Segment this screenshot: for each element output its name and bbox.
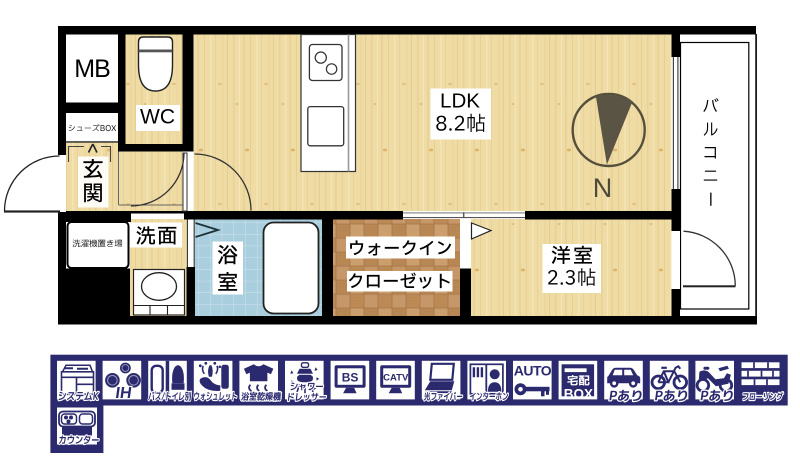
svg-text:LDK: LDK xyxy=(440,90,480,113)
svg-text:MB: MB xyxy=(74,55,110,83)
svg-text:IH: IH xyxy=(114,384,133,402)
svg-text:BS: BS xyxy=(342,370,359,384)
svg-text:BOX: BOX xyxy=(564,387,593,402)
svg-text:AUTO: AUTO xyxy=(514,362,552,378)
svg-text:WC: WC xyxy=(140,106,175,129)
svg-text:CATV: CATV xyxy=(383,372,409,383)
svg-text:N: N xyxy=(593,173,613,203)
